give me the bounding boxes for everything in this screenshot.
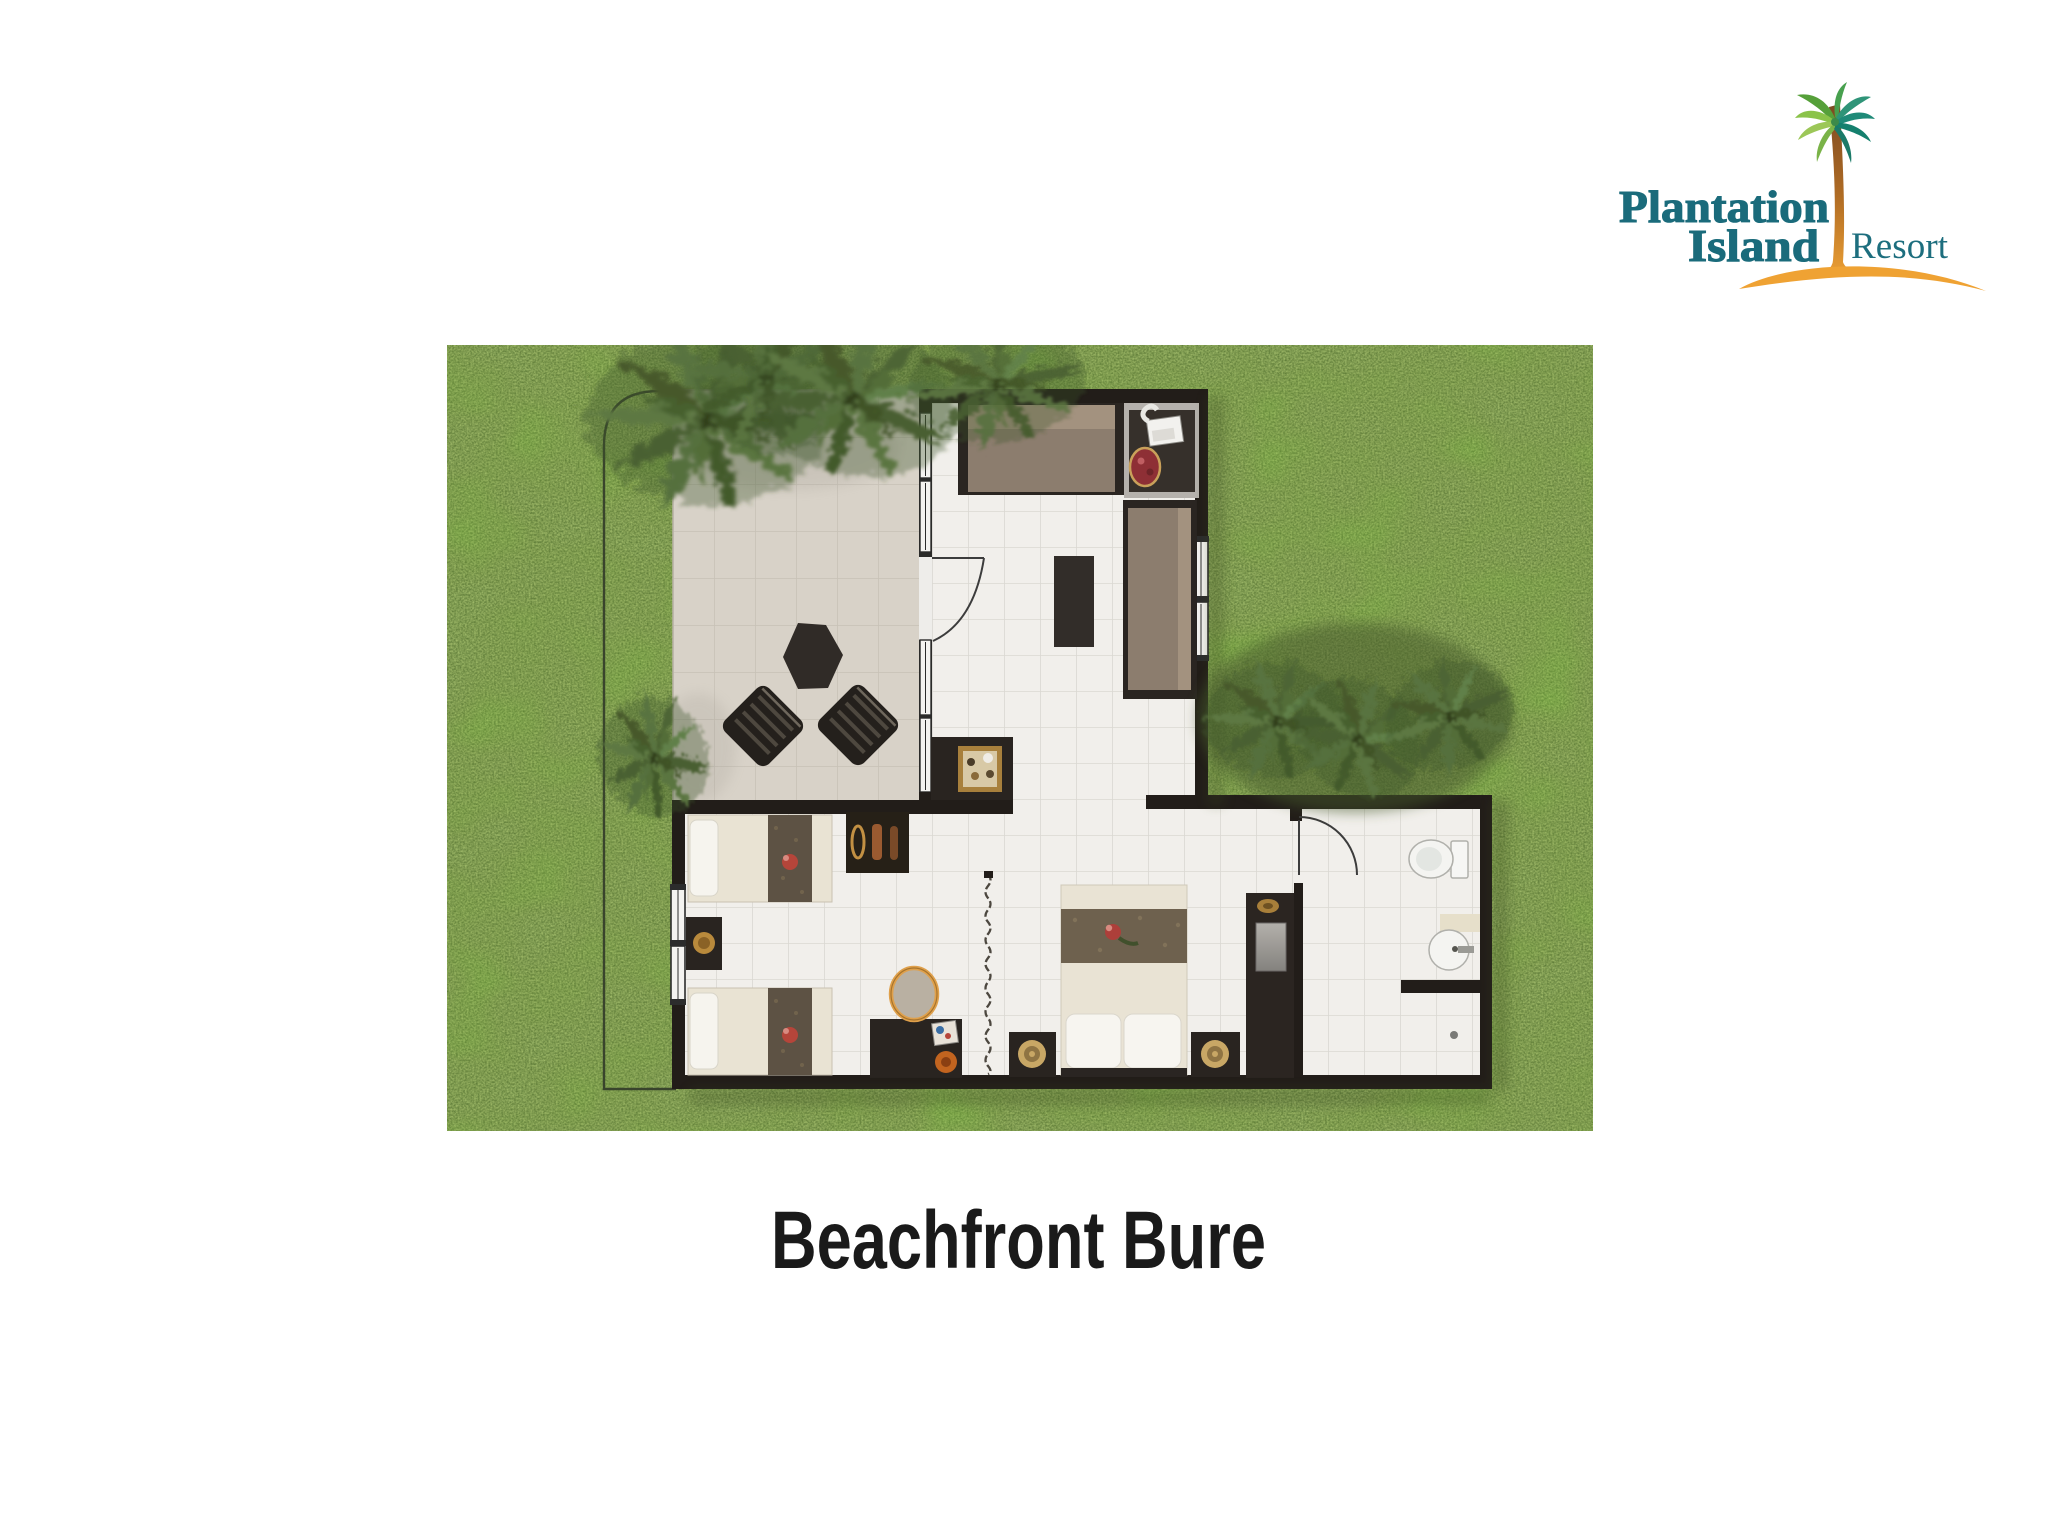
svg-text:Beachfront Bure: Beachfront Bure (771, 1195, 1266, 1286)
svg-text:Resort: Resort (1851, 226, 1949, 267)
svg-text:Island: Island (1688, 220, 1819, 271)
